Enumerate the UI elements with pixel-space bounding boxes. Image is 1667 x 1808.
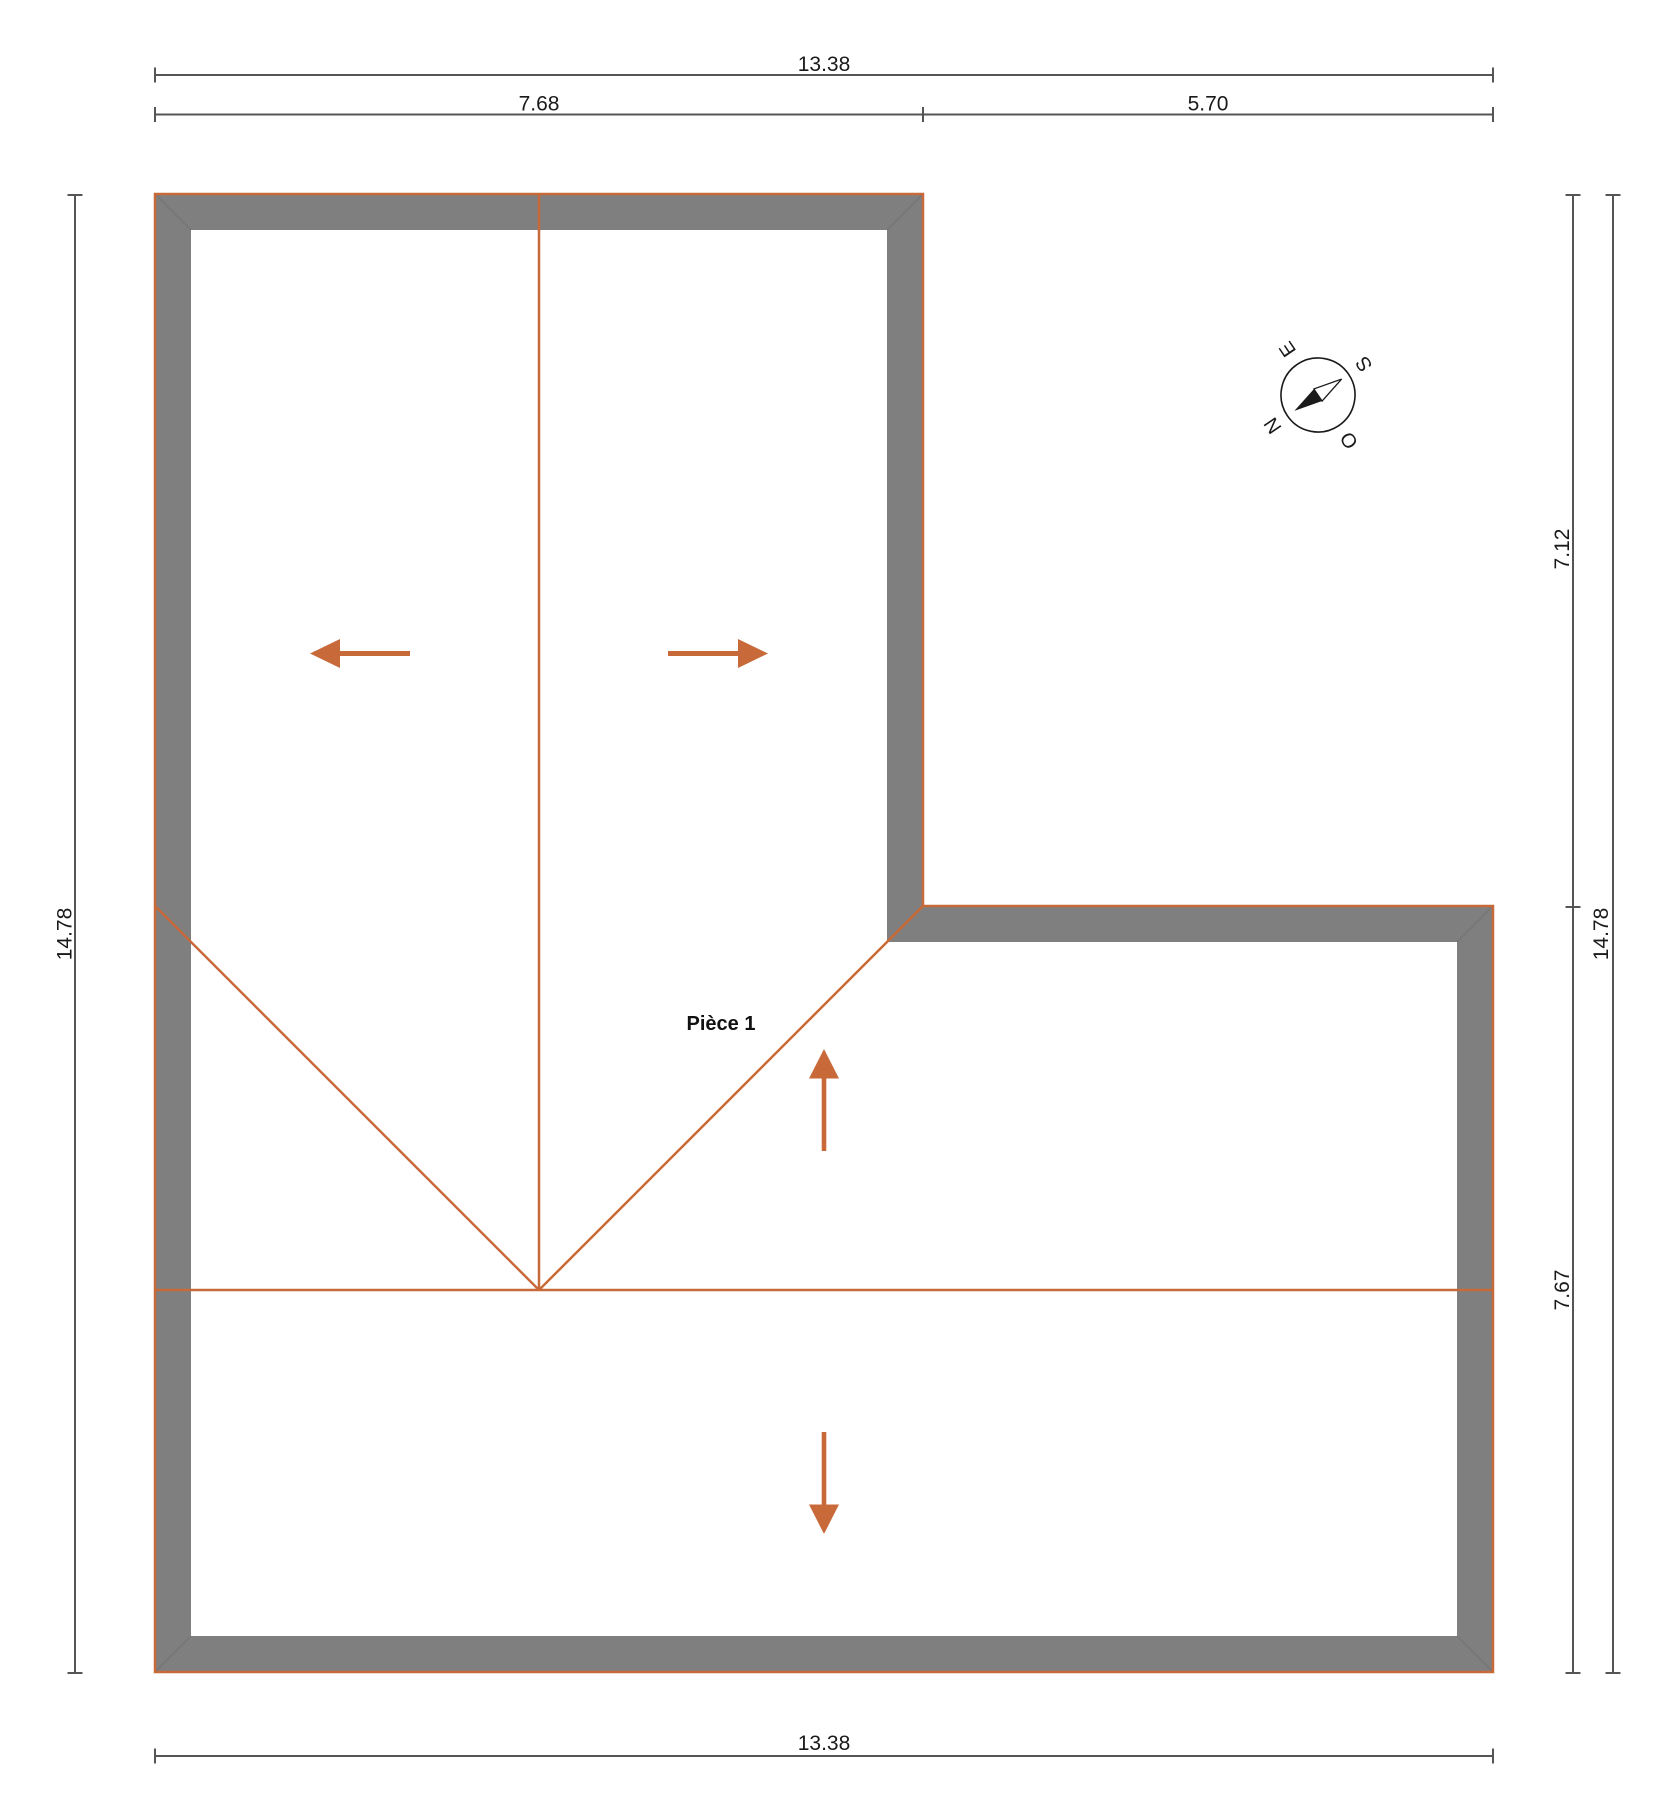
svg-text:Pièce 1: Pièce 1 xyxy=(687,1013,756,1035)
svg-text:13.38: 13.38 xyxy=(798,1732,851,1755)
svg-text:13.38: 13.38 xyxy=(798,53,851,76)
svg-text:7.12: 7.12 xyxy=(1551,529,1574,570)
svg-text:5.70: 5.70 xyxy=(1188,93,1229,116)
svg-text:7.68: 7.68 xyxy=(519,93,560,116)
svg-text:14.78: 14.78 xyxy=(54,908,77,961)
svg-text:7.67: 7.67 xyxy=(1551,1270,1574,1311)
svg-text:14.78: 14.78 xyxy=(1590,908,1613,961)
